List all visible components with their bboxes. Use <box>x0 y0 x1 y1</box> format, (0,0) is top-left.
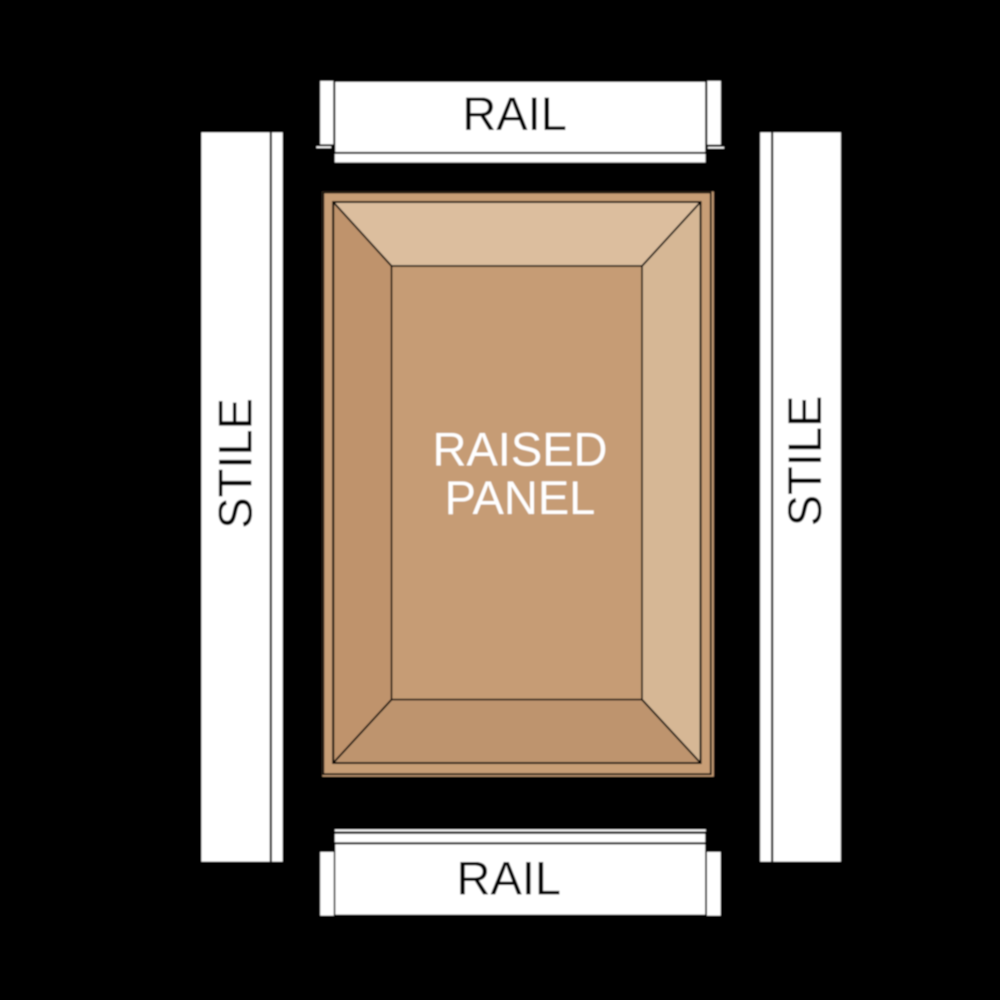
svg-text:RAIL: RAIL <box>457 852 562 905</box>
svg-text:RAIL: RAIL <box>462 87 567 140</box>
svg-text:STILE: STILE <box>778 396 831 527</box>
svg-text:STILE: STILE <box>209 398 262 529</box>
svg-text:RAISED: RAISED <box>433 422 608 475</box>
svg-text:PANEL: PANEL <box>445 471 596 524</box>
